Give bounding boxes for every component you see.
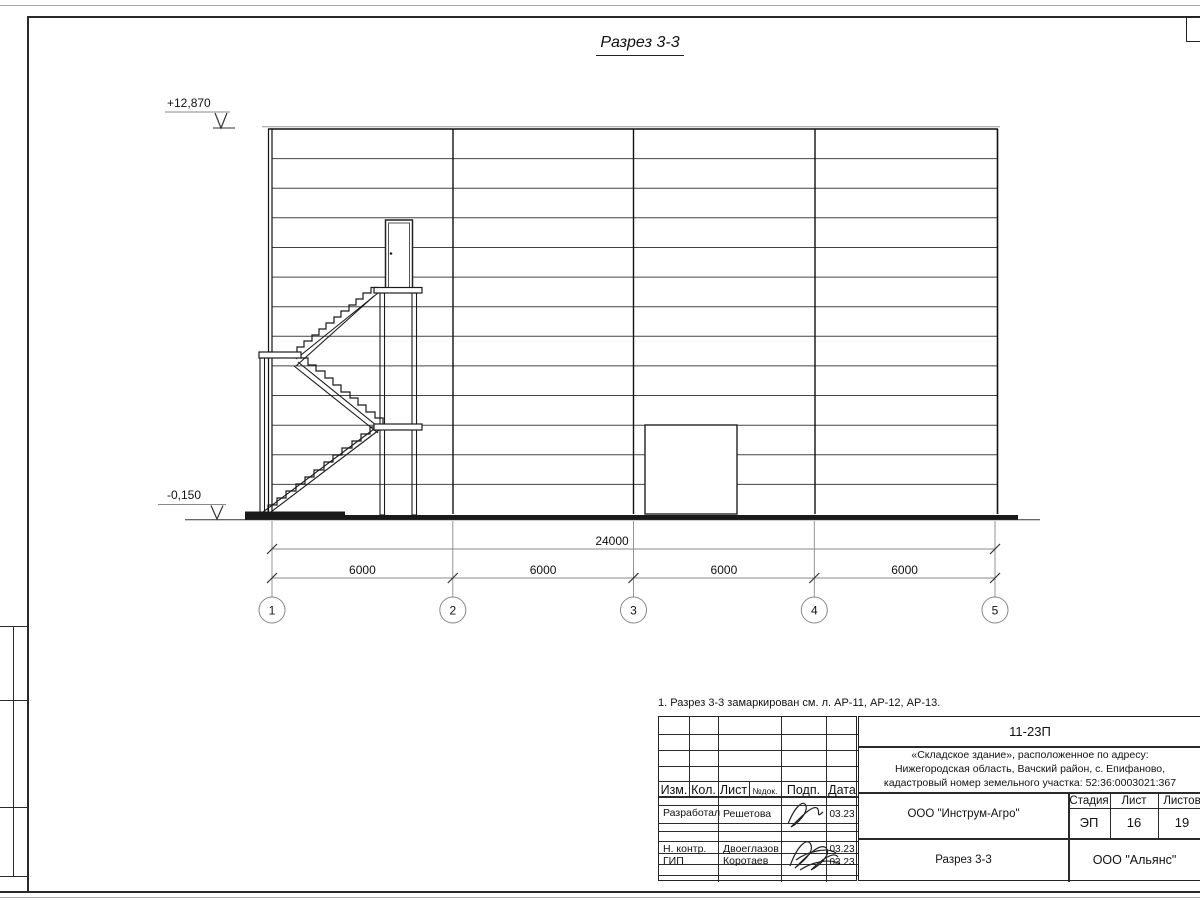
stair-flight-3	[297, 288, 378, 354]
sheet: Разрез 3-3	[0, 0, 1200, 900]
axis-bubble-2: 2	[440, 597, 466, 623]
dimension-lines: 24000 6000 6000 6000 6000	[267, 521, 1000, 597]
row-name: Двоеглазов	[723, 843, 779, 855]
row-role: Разработал	[663, 807, 720, 819]
col-header-list: Лист	[718, 783, 749, 797]
note-text: 1. Разрез 3-3 замаркирован см. л. АР-11,…	[658, 697, 940, 709]
gate-opening	[645, 425, 737, 514]
axis-bubble-5: 5	[982, 597, 1008, 623]
object-address-line1: «Складское здание», расположенное по адр…	[859, 749, 1200, 761]
titleblock-signatures: Изм. Кол. Лист №док. Подп. Дата Разработ…	[658, 716, 857, 881]
svg-text:2: 2	[449, 604, 456, 618]
row-name: Решетова	[723, 808, 771, 820]
client-org: ООО "Инструм-Агро"	[859, 808, 1068, 820]
axis-bubble-3: 3	[621, 597, 647, 623]
row-date: 03.23	[826, 809, 858, 820]
col-header-podp: Подп.	[781, 783, 826, 797]
row-date: 03.23	[826, 857, 858, 868]
stair-landing-mid	[374, 424, 422, 430]
svg-text:3: 3	[630, 604, 637, 618]
elevation-mark-top: +12,870	[165, 96, 235, 128]
row-name: Коротаев	[723, 855, 768, 867]
stair-landing-door	[374, 288, 422, 294]
sheet-label: Лист	[1110, 795, 1158, 807]
stair-flight-2	[300, 358, 383, 425]
row-date: 03.23	[826, 844, 858, 855]
doc-code: 11-23П	[859, 724, 1200, 739]
axis-bubbles: 1 2 3 4 5	[259, 597, 1008, 623]
stage-value: ЭП	[1068, 815, 1110, 830]
entry-door	[386, 220, 413, 288]
svg-text:5: 5	[992, 604, 999, 618]
row-role: ГИП	[663, 855, 684, 867]
axis-bubble-1: 1	[259, 597, 285, 623]
column-axis-lines	[269, 129, 998, 514]
dim-segment-label-3: 6000	[711, 563, 738, 577]
building-facade	[262, 127, 1000, 514]
sheet-value: 16	[1110, 815, 1158, 830]
col-header-data: Дата	[826, 783, 858, 797]
object-address-line3: кадастровый номер земельного участка: 52…	[859, 777, 1200, 789]
axis-bubble-4: 4	[801, 597, 827, 623]
stair-base-plate	[245, 512, 345, 516]
sheet-section-name: Разрез 3-3	[859, 854, 1068, 866]
col-header-ndok: №док.	[749, 786, 781, 796]
stair-column-left	[260, 358, 265, 515]
svg-text:4: 4	[811, 604, 818, 618]
stair-column-right-of-door	[412, 293, 417, 515]
col-header-izm: Изм.	[659, 783, 689, 797]
svg-text:1: 1	[269, 604, 276, 618]
contractor-org: ООО "Альянс"	[1068, 853, 1200, 867]
dim-segment-label-2: 6000	[530, 563, 557, 577]
stair-column-left-of-door	[380, 293, 385, 515]
stage-label: Стадия	[1068, 795, 1110, 807]
svg-text:-0,150: -0,150	[167, 488, 201, 502]
row-role: Н. контр.	[663, 843, 706, 855]
dim-total-label: 24000	[595, 534, 629, 548]
titleblock-main: 11-23П «Складское здание», расположенное…	[858, 716, 1200, 881]
stair-landing-upper-left	[259, 352, 301, 358]
col-header-kol: Кол.	[689, 783, 718, 797]
door-handle-icon	[390, 252, 393, 255]
object-address-line2: Нижегородская область, Вачский район, с.…	[859, 763, 1200, 775]
dim-segment-label-1: 6000	[349, 563, 376, 577]
sheets-label: Листов	[1158, 795, 1200, 807]
elevation-mark-bottom: -0,150	[158, 488, 226, 519]
sheets-value: 19	[1158, 815, 1200, 830]
wall-panel-lines	[272, 159, 998, 485]
ground-line	[185, 515, 1040, 520]
dim-segment-label-4: 6000	[891, 563, 918, 577]
svg-text:+12,870: +12,870	[167, 96, 211, 110]
